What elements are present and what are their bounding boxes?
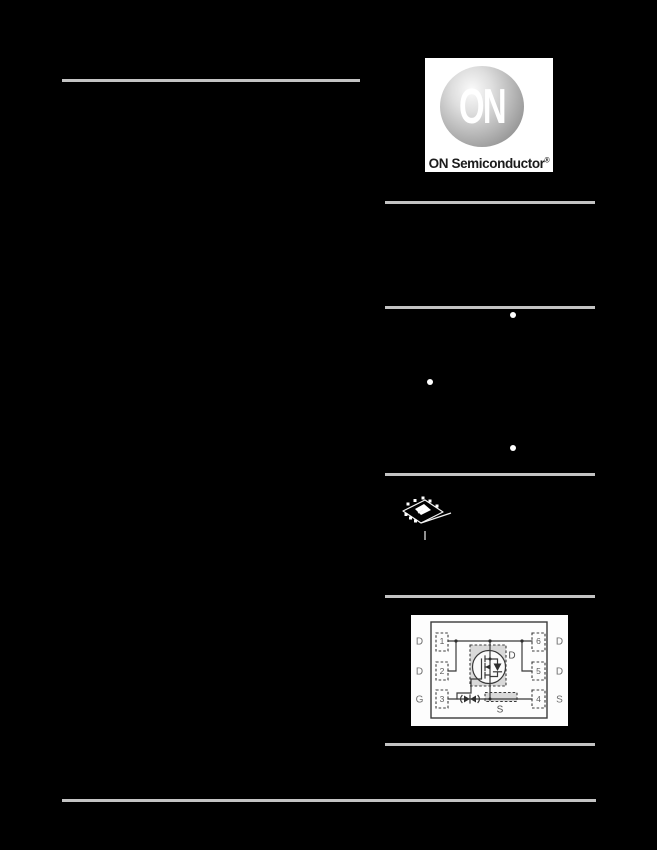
- section-divider-rule: [385, 743, 595, 746]
- junction-dot: [489, 658, 492, 661]
- section-divider-rule: [385, 201, 595, 204]
- section-divider-rule: [385, 595, 595, 598]
- junction-dot: [454, 639, 457, 642]
- pin6-number: 6: [536, 636, 541, 646]
- package-isometric-icon: [390, 492, 460, 547]
- registered-trademark-symbol: ®: [545, 158, 550, 165]
- internal-drain-label: D: [508, 651, 515, 662]
- footer-rule: [62, 799, 596, 802]
- section-divider-rule: [385, 473, 595, 476]
- title-underline-rule: [62, 79, 360, 82]
- junction-dot: [489, 698, 492, 701]
- feature-bullet-icon: [510, 445, 516, 451]
- internal-source-label: S: [497, 705, 504, 716]
- pinout-diagram: 1 2 3 6 5 4 D D G D D S D S: [411, 615, 568, 726]
- pin4-label: S: [556, 695, 563, 706]
- pin5-number: 5: [536, 666, 541, 676]
- pin2-label: D: [416, 667, 423, 678]
- feature-bullet-icon: [427, 379, 433, 385]
- on-logo-caption-text: ON Semiconductor: [429, 156, 545, 171]
- pin3-label: G: [416, 695, 424, 706]
- on-semiconductor-logo: ON ON Semiconductor®: [425, 58, 553, 172]
- pin3-number: 3: [440, 694, 445, 704]
- pin4-number: 4: [536, 694, 541, 704]
- section-divider-rule: [385, 306, 595, 309]
- pin5-label: D: [556, 667, 563, 678]
- pin1-label: D: [416, 637, 423, 648]
- on-logo-caption: ON Semiconductor®: [425, 156, 553, 171]
- pin6-label: D: [556, 637, 563, 648]
- pin1-number: 1: [440, 636, 445, 646]
- junction-dot: [520, 639, 523, 642]
- on-logo-brand-text: ON: [459, 82, 505, 131]
- feature-bullet-icon: [510, 312, 516, 318]
- junction-dot: [488, 639, 491, 642]
- datasheet-page: ON ON Semiconductor®: [0, 0, 657, 850]
- on-logo-sphere-icon: ON: [440, 66, 524, 147]
- pin2-number: 2: [440, 666, 445, 676]
